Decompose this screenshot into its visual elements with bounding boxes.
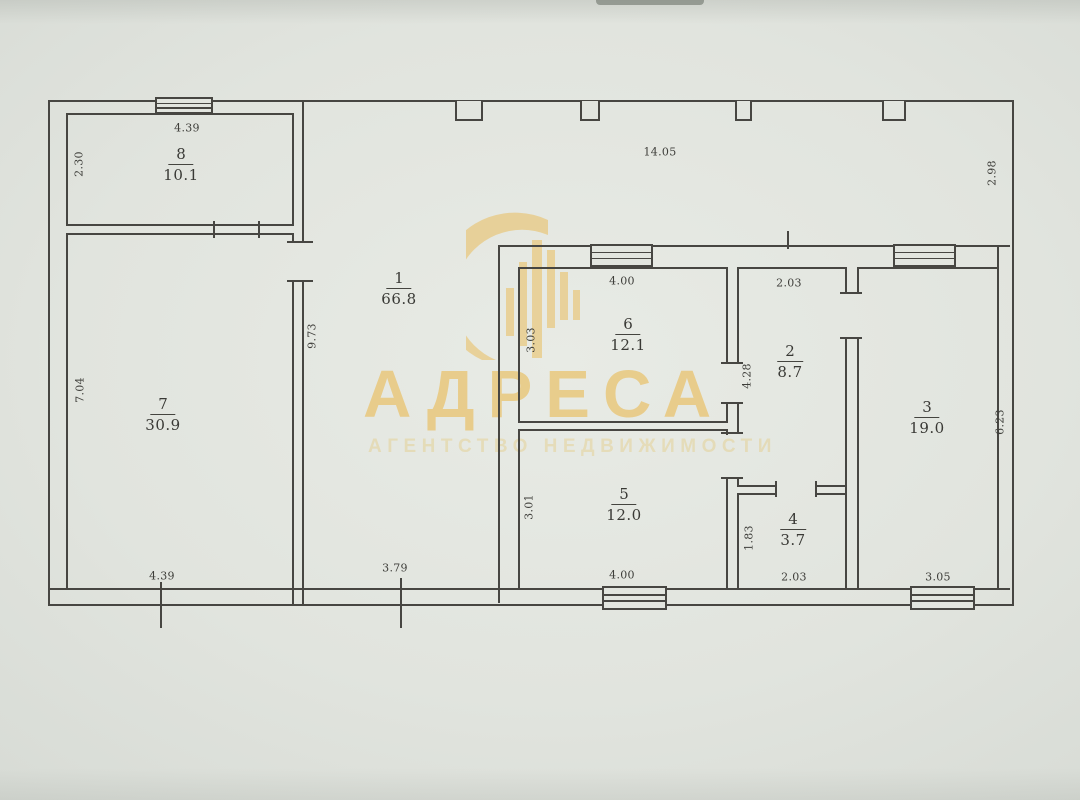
door-opening-tick bbox=[721, 432, 743, 434]
wall-segment bbox=[292, 588, 294, 603]
dim-room1-left-height: 9.73 bbox=[306, 323, 319, 349]
dim-room2-width: 2.03 bbox=[776, 277, 802, 290]
window bbox=[155, 97, 213, 114]
room-area: 8.7 bbox=[777, 362, 802, 382]
room-6-label: 6 12.1 bbox=[610, 317, 645, 355]
room-area: 12.1 bbox=[610, 335, 645, 355]
room-area: 66.8 bbox=[381, 289, 416, 309]
wall-segment bbox=[292, 281, 294, 604]
wall-segment bbox=[518, 429, 728, 431]
wall-segment bbox=[498, 588, 500, 603]
wall-segment bbox=[66, 233, 68, 590]
wall-segment bbox=[518, 421, 728, 423]
wall-segment bbox=[845, 338, 847, 590]
wall-segment bbox=[857, 267, 999, 269]
wall-segment bbox=[857, 338, 859, 590]
wall-segment bbox=[737, 493, 739, 590]
room-number: 1 bbox=[386, 271, 412, 289]
door-opening-tick bbox=[721, 402, 743, 404]
wall-notch bbox=[882, 101, 906, 121]
wall-segment bbox=[498, 245, 500, 590]
room-8-label: 8 10.1 bbox=[163, 147, 198, 185]
wall-segment bbox=[737, 403, 739, 433]
door-opening-tick bbox=[815, 481, 817, 497]
dimension-tick bbox=[787, 231, 789, 249]
room-area: 30.9 bbox=[145, 415, 180, 435]
dim-room6-height: 3.03 bbox=[525, 327, 538, 353]
dimension-tick bbox=[160, 582, 162, 628]
room-area: 3.7 bbox=[780, 530, 805, 550]
door-opening-tick bbox=[287, 241, 313, 243]
dim-room1-width: 14.05 bbox=[644, 146, 677, 159]
door-opening-tick bbox=[840, 292, 862, 294]
dim-room5-height: 3.01 bbox=[523, 494, 536, 520]
window bbox=[602, 586, 667, 610]
door-opening-tick bbox=[213, 221, 215, 238]
room-7-label: 7 30.9 bbox=[145, 397, 180, 435]
dim-room1-right-height: 2.98 bbox=[986, 160, 999, 186]
wall-notch bbox=[735, 101, 752, 121]
window bbox=[893, 244, 956, 267]
room-area: 12.0 bbox=[606, 505, 641, 525]
room-area: 10.1 bbox=[163, 165, 198, 185]
dim-room6-width: 4.00 bbox=[609, 275, 635, 288]
dim-room3-width: 3.05 bbox=[925, 571, 951, 584]
dim-room8-height: 2.30 bbox=[73, 151, 86, 177]
wall-segment bbox=[845, 267, 847, 293]
door-opening-tick bbox=[775, 481, 777, 497]
room-3-label: 3 19.0 bbox=[909, 400, 944, 438]
dim-room2-height: 4.28 bbox=[741, 363, 754, 389]
floor-plan-drawing: 8 10.1 1 66.8 7 30.9 6 12.1 5 12.0 2 8.7… bbox=[0, 0, 1080, 800]
wall-segment bbox=[518, 267, 728, 269]
room-number: 4 bbox=[780, 512, 806, 530]
dim-room7-width: 4.39 bbox=[149, 570, 175, 583]
wall-segment bbox=[815, 485, 847, 487]
door-opening-tick bbox=[721, 477, 743, 479]
dimension-tick bbox=[400, 578, 402, 628]
dim-room1-bottom-width: 3.79 bbox=[382, 562, 408, 575]
room-5-label: 5 12.0 bbox=[606, 487, 641, 525]
wall-segment bbox=[726, 403, 728, 423]
wall-segment bbox=[737, 267, 847, 269]
room-number: 3 bbox=[914, 400, 940, 418]
wall-segment bbox=[302, 281, 304, 604]
dim-room8-width: 4.39 bbox=[174, 122, 200, 135]
wall-segment bbox=[726, 267, 728, 363]
wall-segment bbox=[302, 100, 304, 242]
wall-segment bbox=[518, 267, 520, 423]
floor-plan-photo: { "watermark": { "title": "АДРЕСА", "sub… bbox=[0, 0, 1080, 800]
room-area: 19.0 bbox=[909, 418, 944, 438]
wall-segment bbox=[737, 493, 775, 495]
door-opening-tick bbox=[840, 337, 862, 339]
door-opening-tick bbox=[258, 221, 260, 238]
wall-notch bbox=[455, 101, 483, 121]
room-number: 6 bbox=[615, 317, 641, 335]
dim-room3-height: 6.23 bbox=[994, 409, 1007, 435]
wall-segment bbox=[737, 485, 775, 487]
room-1-label: 1 66.8 bbox=[381, 271, 416, 309]
dim-room7-height: 7.04 bbox=[74, 377, 87, 403]
wall-segment bbox=[66, 233, 294, 235]
wall-segment bbox=[857, 267, 859, 293]
wall-notch bbox=[580, 101, 600, 121]
dim-room4-width: 2.03 bbox=[781, 571, 807, 584]
dim-room5-width: 4.00 bbox=[609, 569, 635, 582]
room-4-label: 4 3.7 bbox=[780, 512, 806, 550]
door-opening-tick bbox=[287, 280, 313, 282]
wall-segment bbox=[815, 493, 847, 495]
window bbox=[590, 244, 653, 267]
dim-room4-height: 1.83 bbox=[743, 525, 756, 551]
room-number: 2 bbox=[777, 344, 803, 362]
wall-segment bbox=[726, 478, 728, 590]
wall-segment bbox=[518, 429, 520, 590]
room-number: 7 bbox=[150, 397, 176, 415]
wall-segment bbox=[737, 267, 739, 363]
wall-segment bbox=[50, 588, 1010, 590]
room-number: 8 bbox=[168, 147, 194, 165]
window bbox=[910, 586, 975, 610]
room-number: 5 bbox=[611, 487, 637, 505]
room-2-label: 2 8.7 bbox=[777, 344, 803, 382]
